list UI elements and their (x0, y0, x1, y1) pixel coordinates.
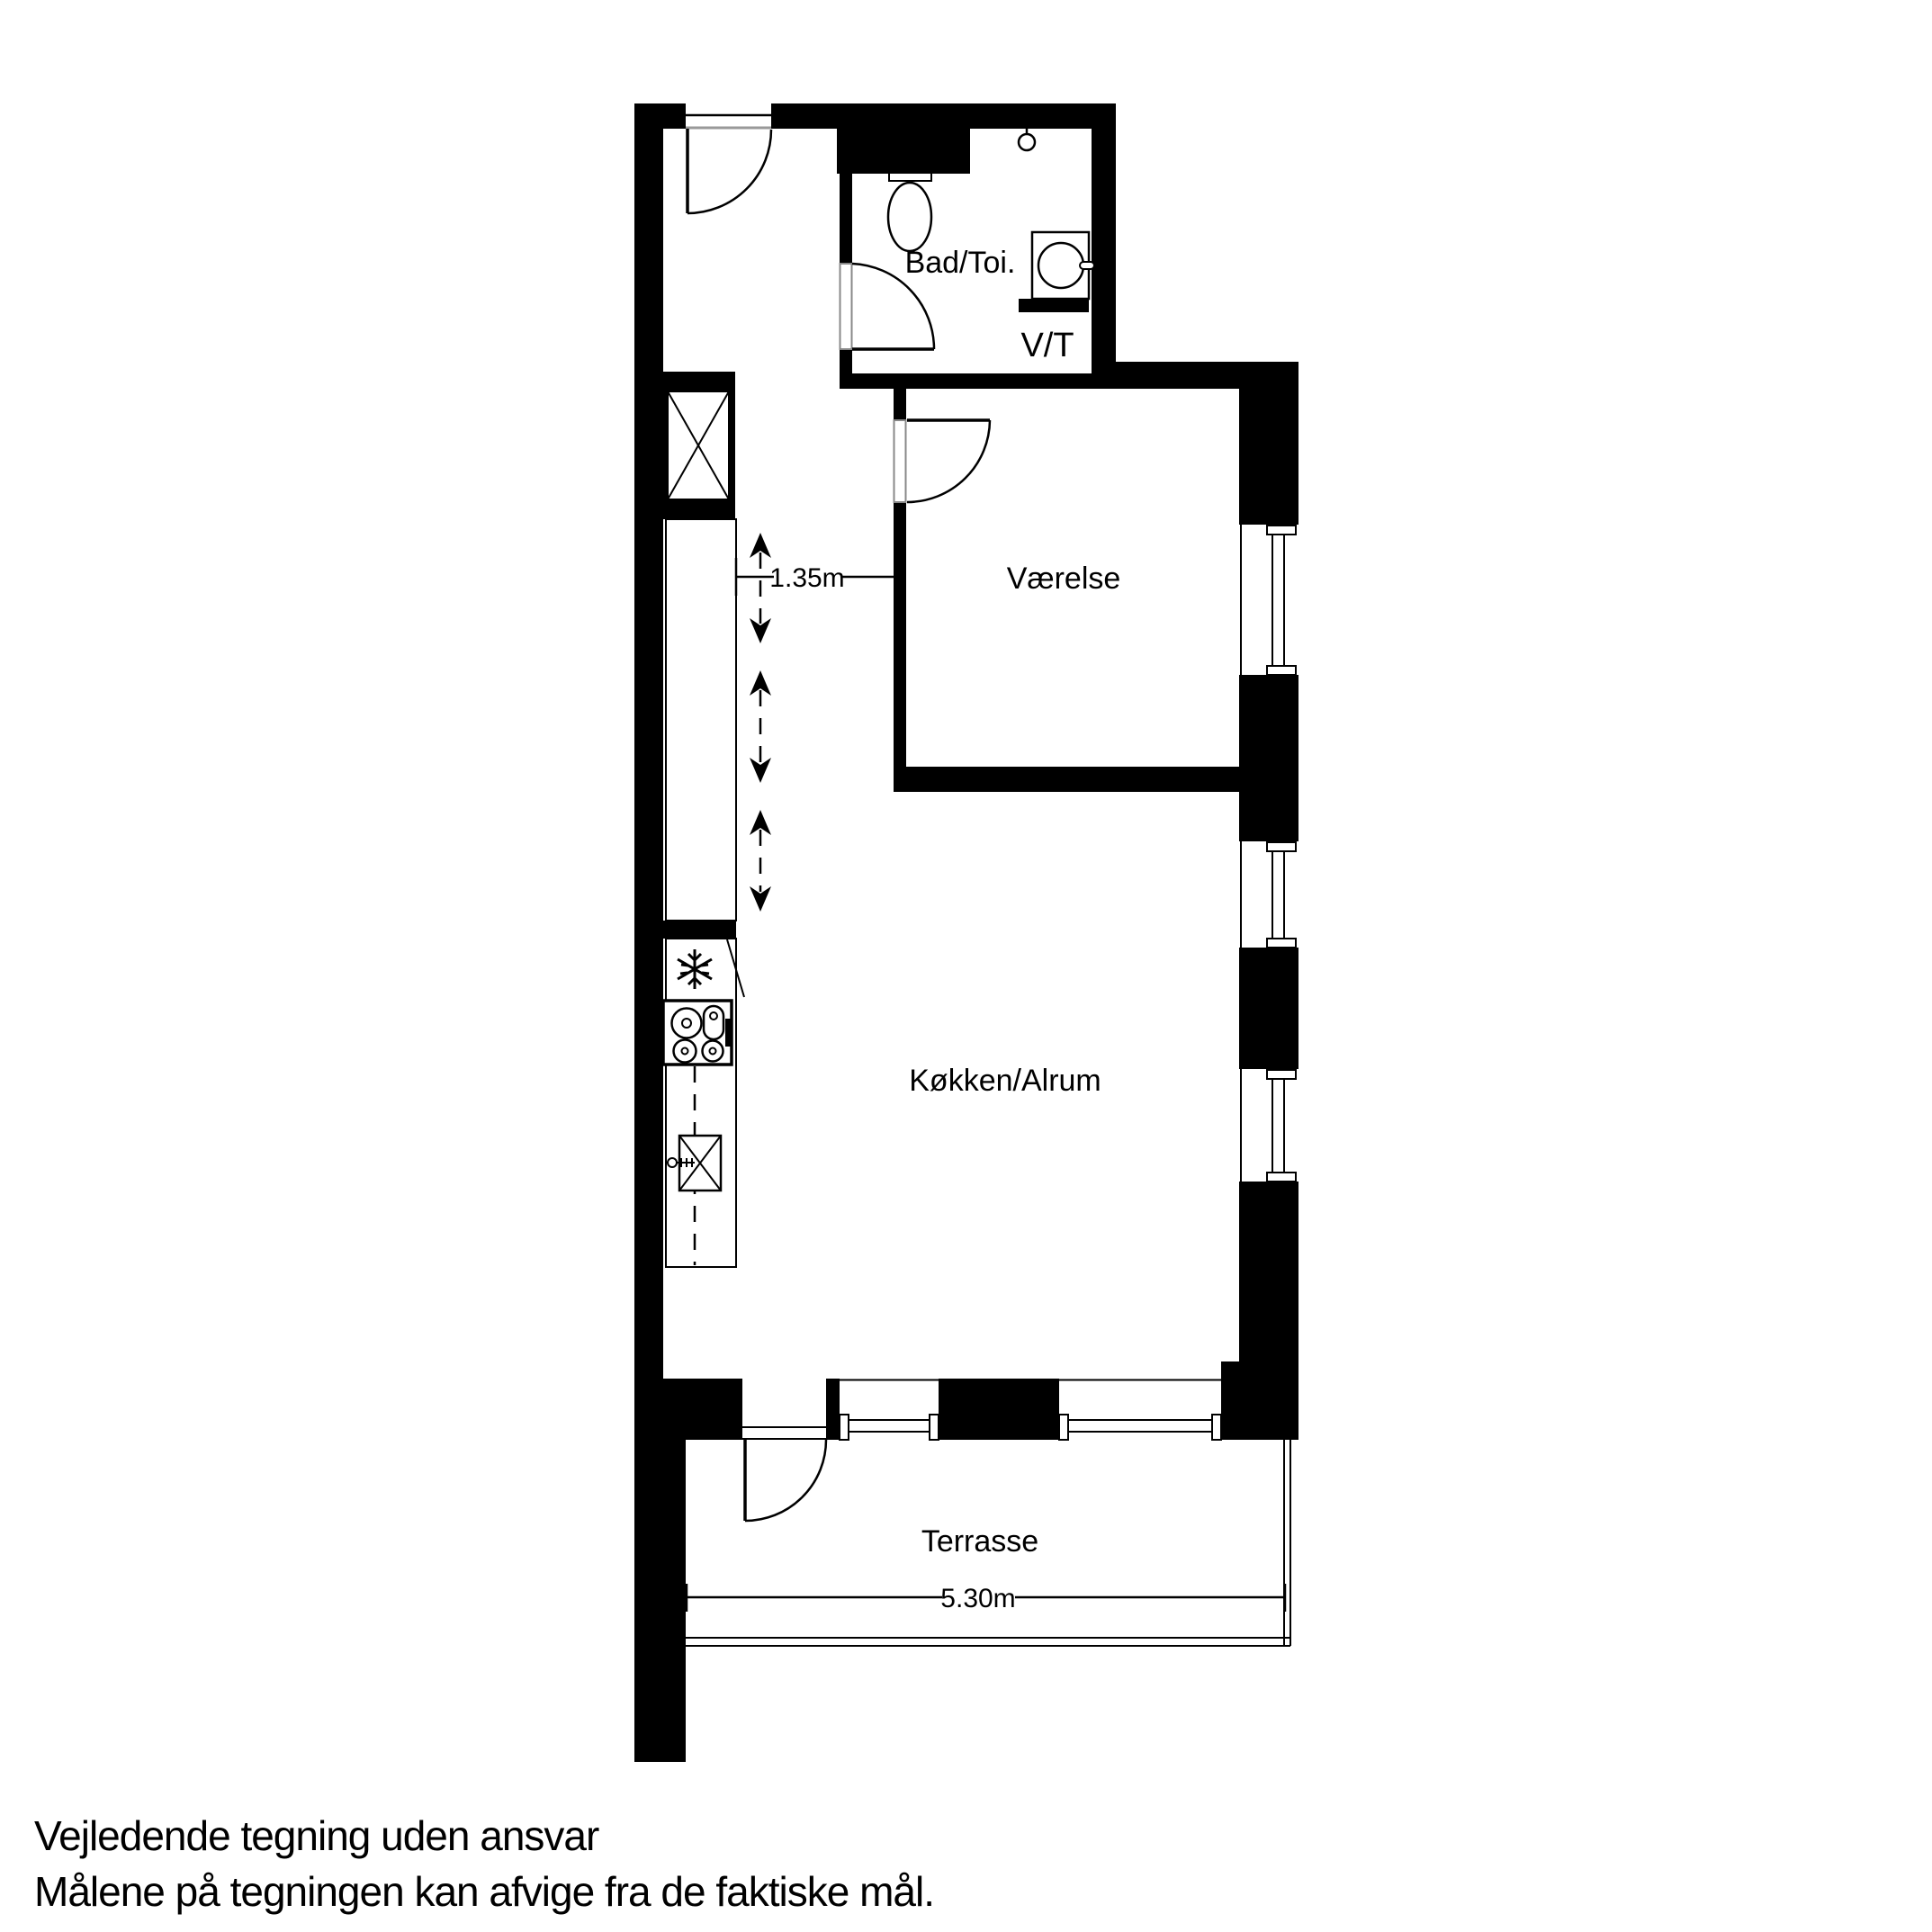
wall-bedroom-left-upper (894, 389, 906, 420)
wall-right-2 (1239, 675, 1298, 841)
wall-bedroom-south (894, 767, 1239, 792)
wall-right-bottom-corner (1221, 1361, 1298, 1440)
room-label-terrace: Terrasse (921, 1524, 1038, 1559)
wall-bedroom-north (1116, 362, 1298, 389)
wall-right-4 (1239, 1182, 1298, 1361)
wall-vt-stub (1019, 299, 1089, 312)
wall-left-lower (634, 1440, 686, 1762)
room-label-kitchen: Køkken/Alrum (909, 1064, 1101, 1098)
wall-right-1 (1239, 389, 1298, 525)
wall-top-right (771, 103, 1116, 129)
stove-icon (663, 1001, 732, 1065)
wall-bottom-mid (939, 1379, 1059, 1440)
floorplan-drawing: 1.35m 5.30m Bad/Toi. V/T Værelse Køkken/… (0, 0, 1932, 1932)
dimension-hall-width-label: 1.35m (769, 563, 844, 593)
footer-line-1: Vejledende tegning uden ansvar (34, 1812, 599, 1859)
shaft-symbol (661, 372, 735, 519)
washing-machine-icon (1032, 232, 1094, 299)
wall-bottom-left (663, 1379, 742, 1440)
wall-bath-south (840, 373, 1092, 389)
wall-bottom-post (826, 1379, 840, 1440)
wall-bedroom-left-lower (894, 502, 906, 792)
wall-top-left (634, 103, 686, 129)
room-label-utility: V/T (1020, 327, 1074, 364)
dimension-terrace-width-label: 5.30m (940, 1584, 1015, 1613)
wall-bath-corner-fill (837, 129, 970, 174)
wall-kitchen-stub (663, 921, 736, 939)
wall-bath-right (1092, 129, 1116, 389)
wall-right-3 (1239, 948, 1298, 1069)
room-label-bathroom: Bad/Toi. (905, 246, 1016, 280)
footer-line-2: Målene på tegningen kan afvige fra de fa… (34, 1868, 934, 1915)
room-label-bedroom: Værelse (1007, 562, 1121, 596)
wall-left-upper (634, 103, 663, 1440)
wall-bath-partition-upper (840, 129, 852, 264)
background (0, 0, 1932, 1932)
